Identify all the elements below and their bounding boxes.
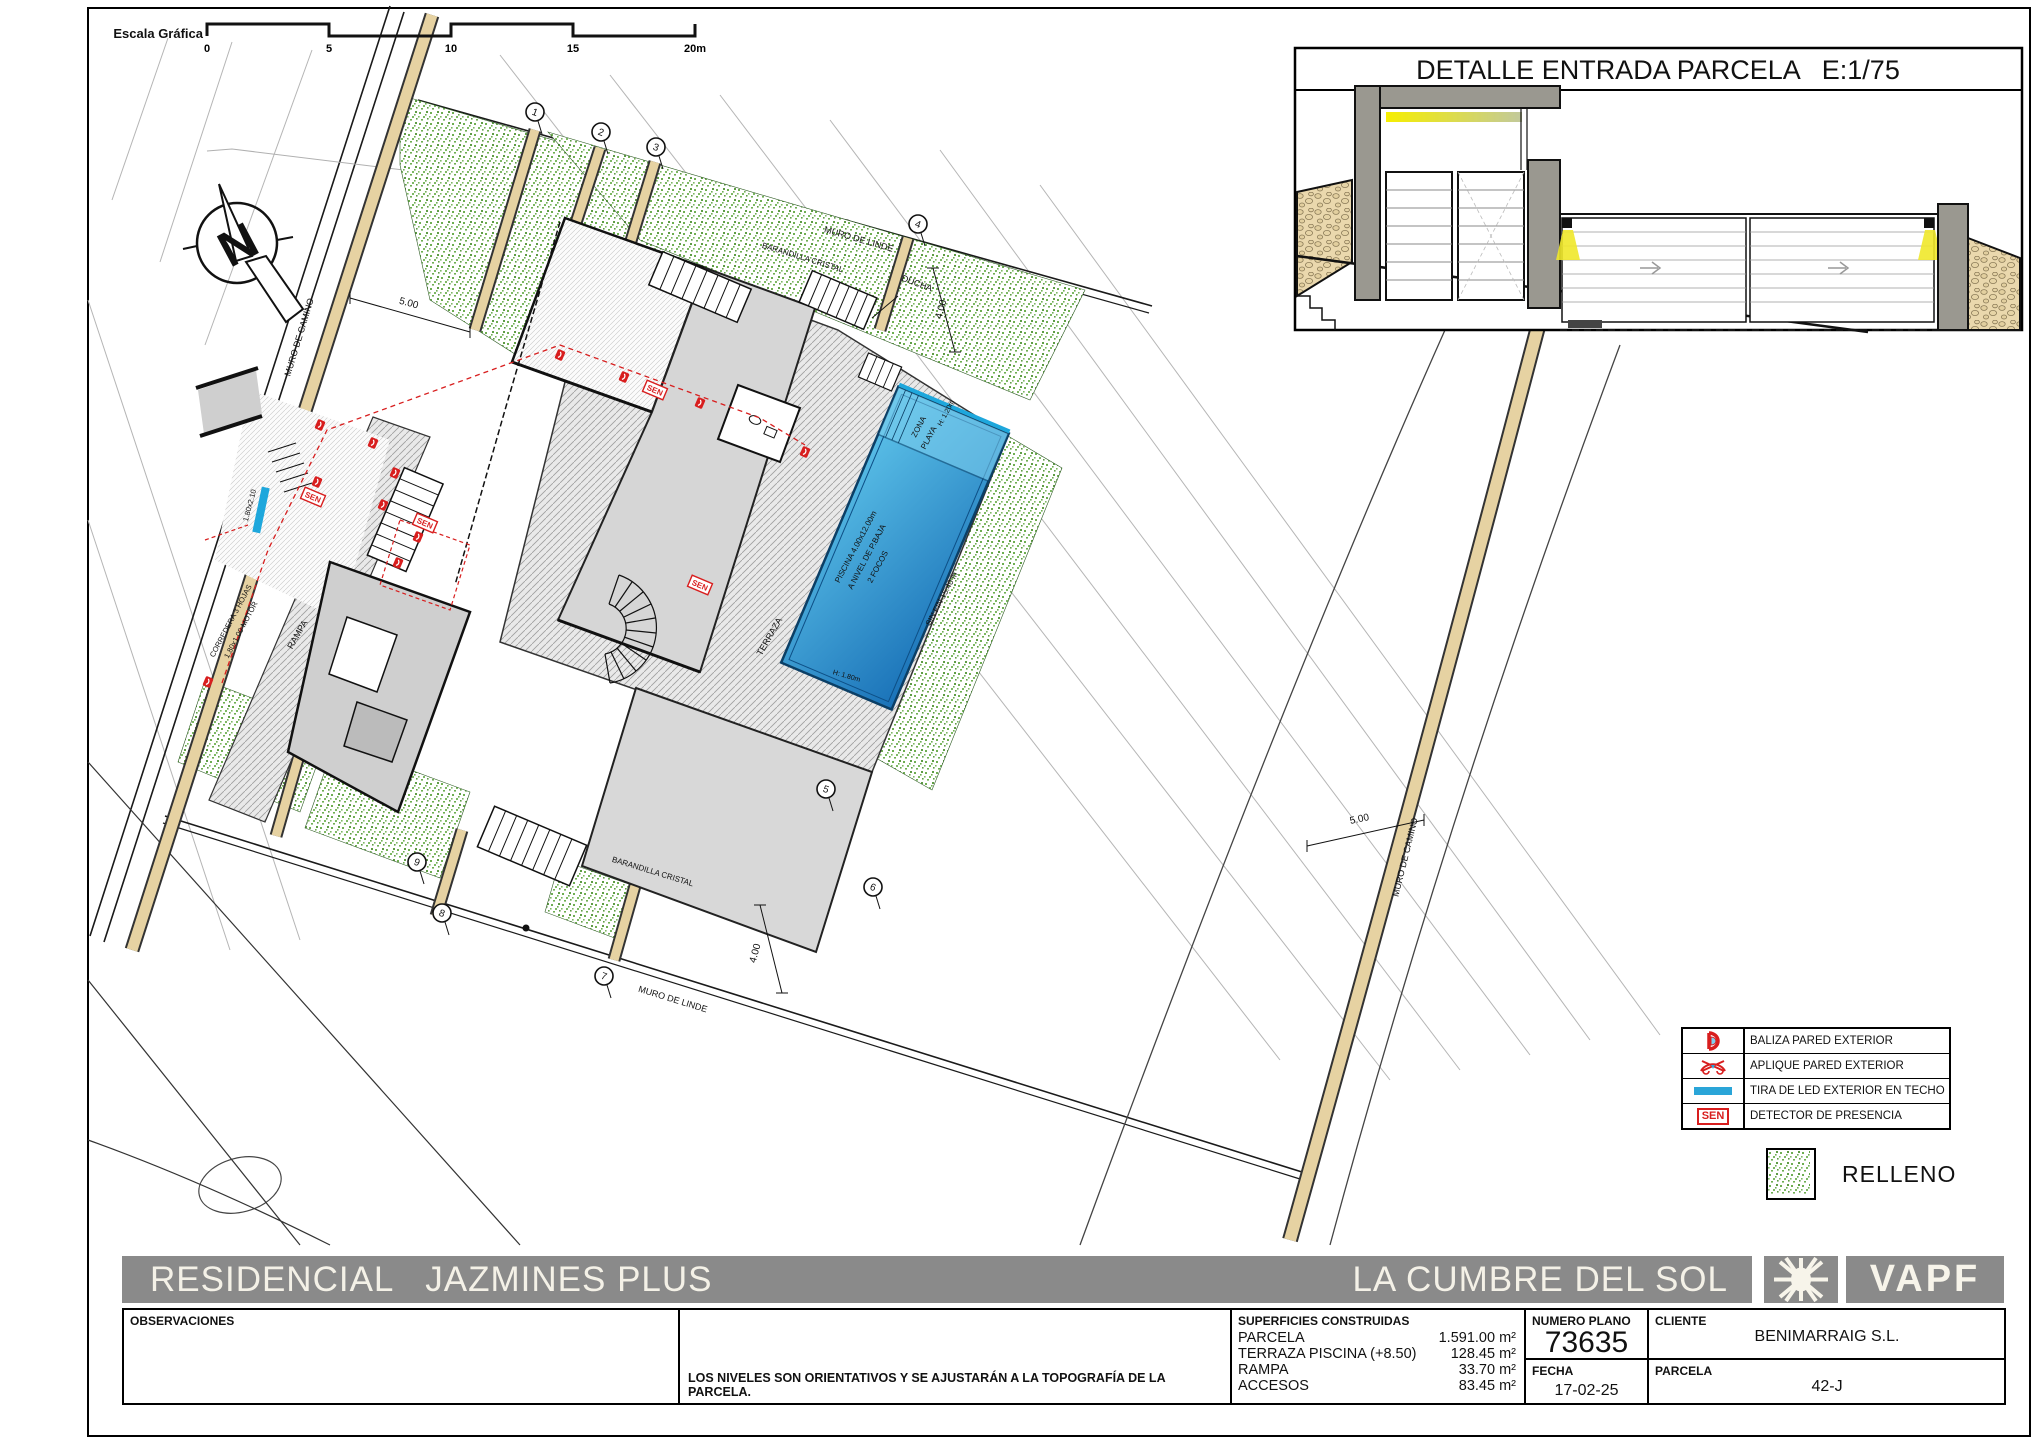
wall-marker: 8 (433, 904, 451, 935)
project-title: RESIDENCIAL JAZMINES PLUS (122, 1260, 713, 1300)
plan-label: MURO DE LINDE (637, 984, 708, 1014)
superficies-header: SUPERFICIES CONSTRUIDAS (1232, 1310, 1524, 1328)
title-bar: RESIDENCIAL JAZMINES PLUS LA CUMBRE DEL … (122, 1256, 1752, 1303)
scale-bar: Escala Gráfica 0 5 10 15 20m (113, 24, 706, 55)
title-block-table: OBSERVACIONES LOS NIVELES SON ORIENTATIV… (122, 1308, 2006, 1405)
sen-icon: SEN (1683, 1104, 1745, 1128)
fecha-value: 17-02-25 (1526, 1382, 1647, 1400)
cliente-label: CLIENTE (1649, 1310, 2005, 1328)
plan-label: 5.00 (398, 296, 420, 312)
fecha-label: FECHA (1526, 1360, 1647, 1378)
numero-plano-value: 73635 (1526, 1326, 1647, 1360)
superficies-rows: PARCELA1.591.00 m²TERRAZA PISCINA (+8.50… (1232, 1328, 1524, 1394)
aplique-icon (1683, 1054, 1745, 1078)
contour-line (112, 38, 168, 200)
legend-label: BALIZA PARED EXTERIOR (1745, 1035, 1893, 1047)
parcela-label: PARCELA (1649, 1360, 2005, 1378)
notes-cell: LOS NIVELES SON ORIENTATIVOS Y SE AJUSTA… (678, 1310, 1230, 1403)
relleno-label: RELLENO (1842, 1161, 1956, 1188)
relleno-swatch (1766, 1148, 1816, 1200)
plan-label: 4.00 (748, 942, 764, 964)
svg-text:0: 0 (204, 43, 210, 55)
legend-row-aplique: APLIQUE PARED EXTERIOR (1683, 1053, 1949, 1078)
wall-marker: 9 (408, 853, 426, 884)
site-plan-svg: N Escala Gráfica 0 5 10 15 20m MURO DE C… (0, 0, 2037, 1440)
wall-marker: 7 (595, 967, 613, 998)
parcela-value: 42-J (1649, 1378, 2005, 1396)
wall-marker: 6 (864, 878, 882, 909)
superficies-row: PARCELA1.591.00 m² (1238, 1330, 1516, 1346)
observaciones-cell: OBSERVACIONES (124, 1310, 678, 1403)
baliza-icon (1683, 1029, 1745, 1053)
drawing-sheet: N Escala Gráfica 0 5 10 15 20m MURO DE C… (0, 0, 2037, 1440)
led-strip-detail (1386, 112, 1522, 122)
svg-text:Escala Gráfica: Escala Gráfica (113, 26, 203, 41)
legend-row-baliza: BALIZA PARED EXTERIOR (1683, 1029, 1949, 1053)
plan-label: 5.00 (1349, 812, 1371, 827)
relleno-legend: RELLENO (1766, 1148, 1956, 1200)
superficies-row: RAMPA33.70 m² (1238, 1362, 1516, 1378)
north-arrow-icon: N (183, 184, 303, 322)
legend-table: BALIZA PARED EXTERIOR APLIQUE PARED EXTE… (1681, 1027, 1951, 1130)
levels-note: LOS NIVELES SON ORIENTATIVOS Y SE AJUSTA… (680, 1371, 1230, 1403)
legend-label: APLIQUE PARED EXTERIOR (1745, 1060, 1904, 1072)
legend-row-led: TIRA DE LED EXTERIOR EN TECHO (1683, 1078, 1949, 1103)
vapf-wordmark: VAPF (1846, 1256, 2004, 1303)
led-strip-icon (1683, 1079, 1745, 1103)
superficies-cell: SUPERFICIES CONSTRUIDAS PARCELA1.591.00 … (1230, 1310, 1524, 1403)
cliente-cell: CLIENTE BENIMARRAIG S.L. PARCELA 42-J (1647, 1310, 2005, 1403)
legend-label: DETECTOR DE PRESENCIA (1745, 1110, 1902, 1122)
svg-text:20m: 20m (684, 43, 706, 55)
svg-text:5: 5 (326, 43, 332, 55)
cliente-value: BENIMARRAIG S.L. (1649, 1328, 2005, 1346)
numero-plano-cell: NUMERO PLANO 73635 FECHA 17-02-25 (1524, 1310, 1647, 1403)
superficies-row: TERRAZA PISCINA (+8.50)128.45 m² (1238, 1346, 1516, 1362)
vapf-sun-logo-icon (1764, 1256, 1838, 1303)
location-title: LA CUMBRE DEL SOL (1352, 1260, 1752, 1300)
legend-label: TIRA DE LED EXTERIOR EN TECHO (1745, 1085, 1945, 1097)
observaciones-label: OBSERVACIONES (124, 1310, 678, 1328)
superficies-row: ACCESOS83.45 m² (1238, 1378, 1516, 1394)
legend-row-sen: SEN DETECTOR DE PRESENCIA (1683, 1103, 1949, 1128)
detail-title: DETALLE ENTRADA PARCELA E:1/75 (1416, 55, 1900, 85)
svg-text:15: 15 (567, 43, 579, 55)
detail-entrada-parcela: DETALLE ENTRADA PARCELA E:1/75 (1295, 48, 2022, 332)
svg-text:10: 10 (445, 43, 457, 55)
